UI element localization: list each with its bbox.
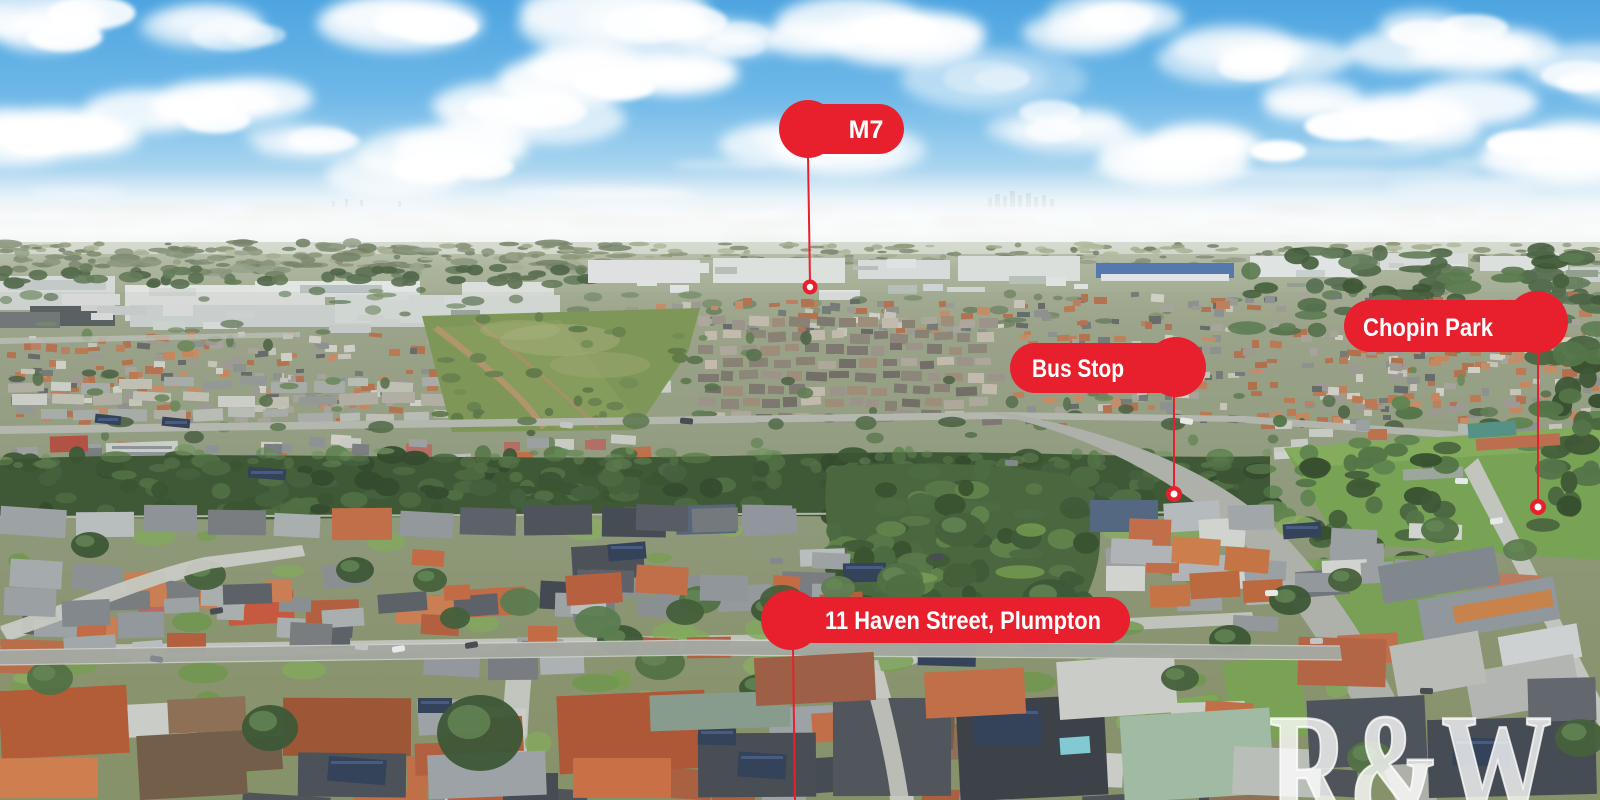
svg-text:Chopin Park: Chopin Park [1363,314,1493,342]
svg-text:Bus Stop: Bus Stop [1032,355,1124,383]
svg-text:R&W: R&W [1269,682,1552,800]
svg-text:M7: M7 [849,116,884,144]
svg-text:11 Haven Street, Plumpton: 11 Haven Street, Plumpton [825,607,1101,635]
